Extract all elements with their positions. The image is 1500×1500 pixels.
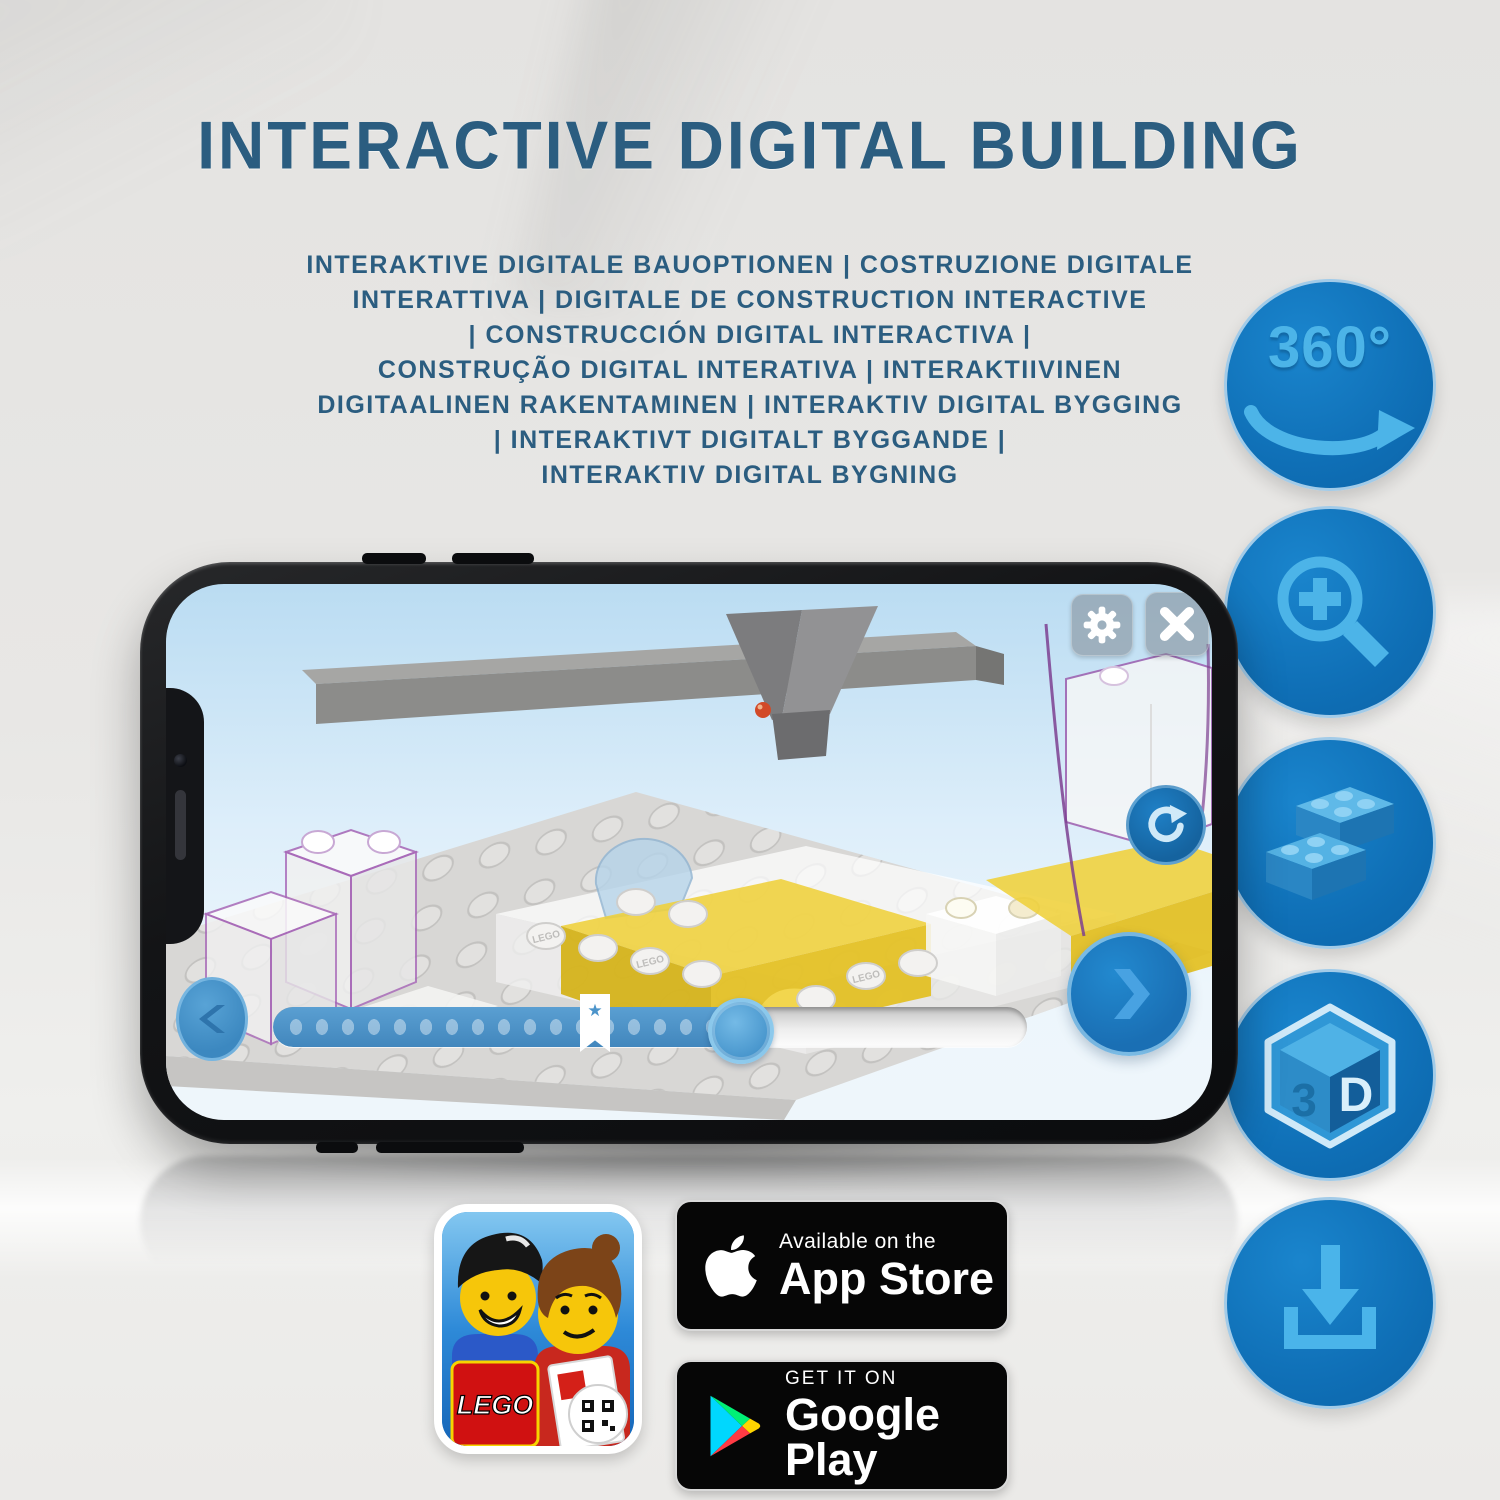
chevron-right-icon: [1106, 967, 1152, 1021]
download-icon: [1260, 1233, 1400, 1373]
reset-rotation-button[interactable]: [1126, 785, 1206, 865]
marketing-page: INTERACTIVE DIGITAL BUILDING INTERAKTIVE…: [0, 0, 1500, 1500]
close-icon: [1156, 603, 1198, 645]
phone-side-button: [376, 1142, 524, 1153]
gear-icon: [1082, 605, 1122, 645]
rotation-swoosh-icon: [1243, 400, 1419, 466]
feature-3d-view: 3 D: [1224, 969, 1436, 1181]
slider-thumb[interactable]: [708, 998, 774, 1064]
google-play-icon: [703, 1392, 765, 1460]
lego-logo: LEGO: [457, 1390, 534, 1420]
feature-360-rotation: 360°: [1224, 279, 1436, 491]
multilingual-subtitle: INTERAKTIVE DIGITALE BAUOPTIONEN | COSTR…: [220, 248, 1280, 493]
subtitle-line: CONSTRUÇÃO DIGITAL INTERATIVA | INTERAKT…: [220, 353, 1280, 388]
brick-icon: [1254, 772, 1406, 914]
subtitle-line: INTERATTIVA | DIGITALE DE CONSTRUCTION I…: [220, 283, 1280, 318]
subtitle-line: INTERAKTIV DIGITAL BYGNING: [220, 458, 1280, 493]
star-icon: ★: [587, 1001, 602, 1020]
app-store-tagline: Available on the: [779, 1231, 994, 1252]
build-progress-slider[interactable]: [273, 1007, 1027, 1047]
phone-side-button: [362, 553, 426, 564]
apple-logo-icon: [703, 1231, 759, 1301]
3d-cube-icon: 3 D: [1254, 999, 1406, 1151]
close-button[interactable]: [1145, 592, 1209, 656]
phone-screen: LEGO LEGO LEGO: [166, 584, 1212, 1120]
smartphone: LEGO LEGO LEGO: [140, 562, 1238, 1144]
rotate-icon: [1143, 802, 1189, 848]
page-title: INTERACTIVE DIGITAL BUILDING: [0, 106, 1500, 184]
zoom-in-icon: [1263, 545, 1397, 679]
previous-step-button[interactable]: [176, 977, 248, 1061]
phone-side-button: [452, 553, 534, 564]
google-play-tagline: GET IT ON: [785, 1369, 1007, 1388]
subtitle-line: | CONSTRUCCIÓN DIGITAL INTERACTIVA |: [220, 318, 1280, 353]
phone-notch: [166, 688, 204, 944]
settings-button[interactable]: [1071, 594, 1133, 656]
google-play-badge[interactable]: GET IT ON Google Play: [675, 1360, 1009, 1491]
front-camera-icon: [174, 754, 187, 767]
subtitle-line: INTERAKTIVE DIGITALE BAUOPTIONEN | COSTR…: [220, 248, 1280, 283]
earpiece-speaker: [175, 790, 186, 860]
cube-face-3: 3: [1291, 1074, 1317, 1126]
google-play-name: Google Play: [785, 1392, 1007, 1482]
subtitle-line: DIGITAALINEN RAKENTAMINEN | INTERAKTIV D…: [220, 388, 1280, 423]
feature-bricks: [1224, 737, 1436, 949]
cube-face-d: D: [1339, 1069, 1374, 1122]
phone-side-button: [316, 1142, 358, 1153]
feature-download: [1224, 1197, 1436, 1409]
app-store-name: App Store: [779, 1256, 994, 1301]
app-store-badge[interactable]: Available on the App Store: [675, 1200, 1009, 1331]
next-step-button[interactable]: [1067, 932, 1191, 1056]
chevron-left-icon: [199, 1003, 225, 1035]
lego-app-icon[interactable]: LEGO: [434, 1204, 642, 1454]
slider-fill: [273, 1007, 737, 1047]
subtitle-line: | INTERAKTIVT DIGITALT BYGGANDE |: [220, 423, 1280, 458]
360-degree-label: 360°: [1227, 314, 1433, 381]
lego-app-artwork: LEGO: [442, 1212, 634, 1446]
feature-zoom: [1224, 506, 1436, 718]
